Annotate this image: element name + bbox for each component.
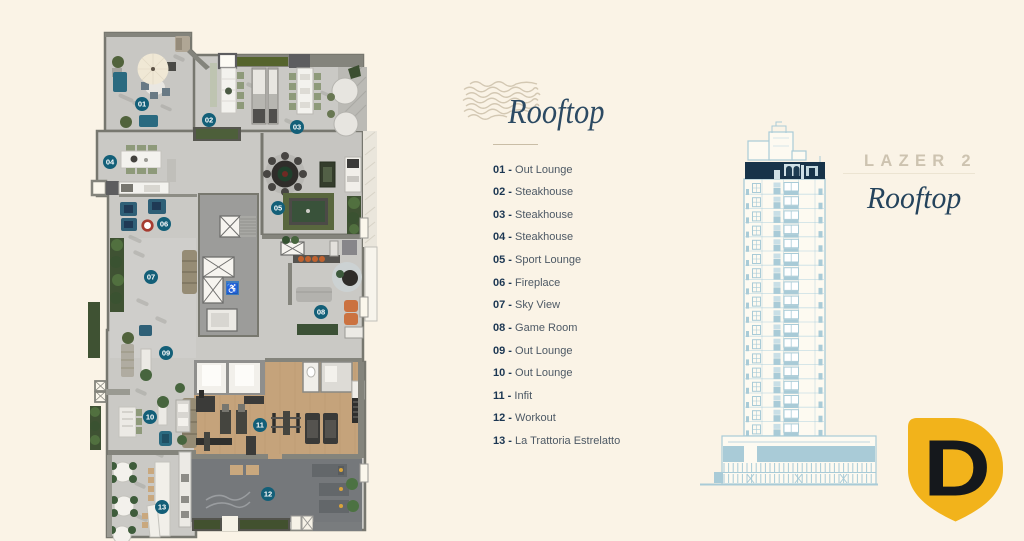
svg-text:13: 13 <box>158 503 166 512</box>
svg-text:06: 06 <box>160 220 168 229</box>
svg-text:02: 02 <box>205 116 213 125</box>
svg-text:09: 09 <box>162 349 170 358</box>
svg-text:03: 03 <box>293 123 301 132</box>
svg-text:04: 04 <box>106 158 115 167</box>
svg-text:08: 08 <box>317 308 325 317</box>
svg-text:D: D <box>923 424 991 513</box>
svg-text:♿: ♿ <box>226 282 238 295</box>
svg-text:10: 10 <box>146 413 154 422</box>
svg-text:07: 07 <box>147 273 155 282</box>
svg-text:11: 11 <box>256 421 264 430</box>
svg-text:01: 01 <box>138 100 146 109</box>
svg-text:05: 05 <box>274 204 282 213</box>
svg-text:12: 12 <box>264 490 272 499</box>
